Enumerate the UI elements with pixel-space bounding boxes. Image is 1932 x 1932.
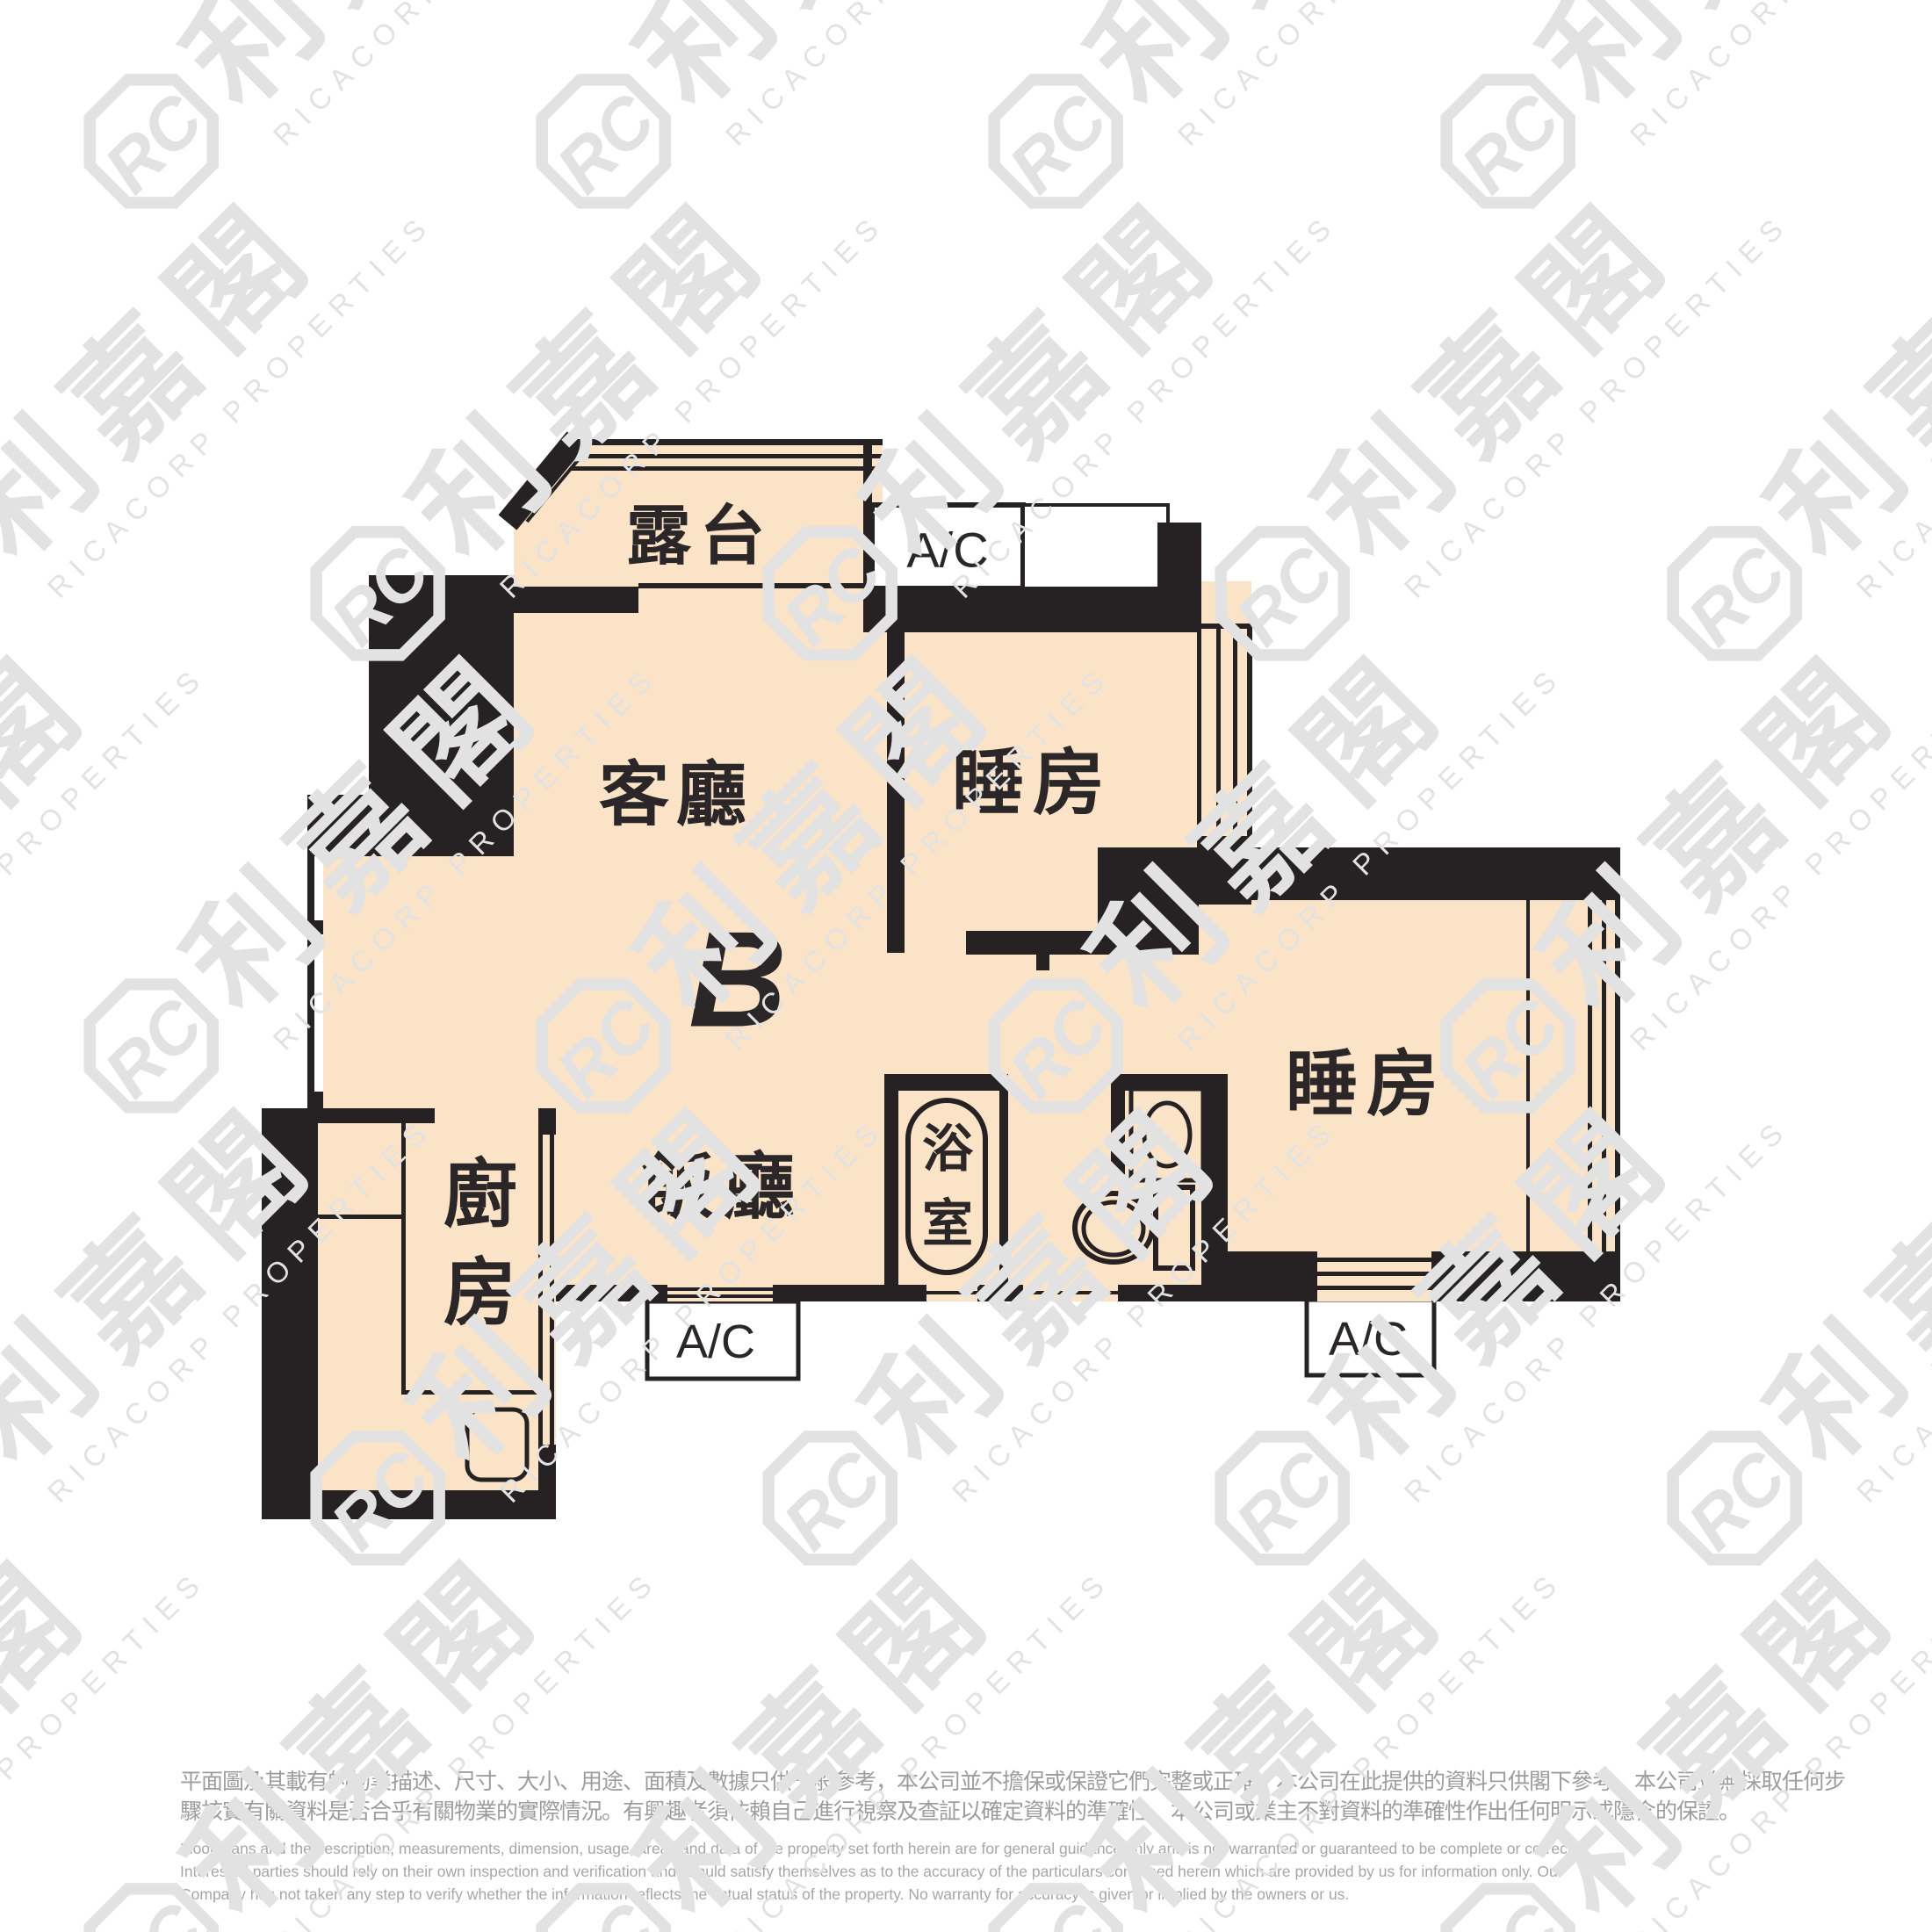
toilet-sill-line	[1023, 1291, 1118, 1294]
kitchen-door-line-b	[550, 1135, 554, 1446]
bathroom-sill-line	[926, 1291, 977, 1294]
kitchen-counter-hline	[401, 1390, 538, 1395]
ac-label-bottom-left: A/C	[676, 1316, 755, 1368]
bedroom1-window-line2	[1216, 626, 1221, 841]
kitchen-counter-vline	[401, 1123, 406, 1395]
bedroom2-label: 睡房	[1286, 1045, 1447, 1125]
balcony-label: 露台	[626, 500, 774, 573]
balcony-door-sill	[638, 583, 863, 588]
wall-bedroom1-left	[887, 632, 905, 953]
bedroom2-window-inner-line	[1526, 900, 1530, 1251]
wall-left-stub-b	[307, 1092, 323, 1111]
bedroom2-bottom-window-line2	[1317, 1272, 1431, 1276]
wall-bathroom-left	[884, 1074, 898, 1301]
wall-kitchen-bottom	[262, 1490, 556, 1519]
disclaimer-en-line2: Interested parties should rely on their …	[180, 1860, 1845, 1883]
floorplan-page: 露台 客廳 睡房 睡房 飯廳 廚房 浴室 B A/C A/C A/C RC利嘉閣…	[0, 0, 1932, 1932]
wall-kitchen-left	[262, 1108, 318, 1519]
bedroom2-window-line1	[1588, 900, 1592, 1251]
disclaimer-zh-line2: 驟核實有關資料是否合乎有關物業的實際情況。有興趣者須依賴自己進行視察及查証以確定…	[180, 1797, 1845, 1827]
wall-left-outer	[307, 795, 314, 1121]
wall-living-top	[514, 587, 638, 613]
wall-bath-toilet-divider	[999, 1074, 1008, 1287]
disclaimer: 平面圖及其載有的物業描述、尺寸、大小、用途、面積及數據只供一般參考，本公司並不擔…	[180, 1767, 1845, 1906]
bedroom1-window-line3	[1233, 626, 1237, 841]
balcony-window-line3	[571, 466, 883, 471]
bedroom1-window-cap	[1197, 624, 1251, 629]
window-box-top-right	[1023, 505, 1168, 588]
wall-bathroom-top	[884, 1074, 1004, 1091]
wall-left-step	[307, 795, 514, 856]
wall-corridor-corner	[1098, 847, 1199, 934]
bedroom1-window-line1	[1197, 626, 1201, 841]
dining-sill-line1	[667, 1287, 773, 1291]
disclaimer-zh-line1: 平面圖及其載有的物業描述、尺寸、大小、用途、面積及數據只供一般參考，本公司並不擔…	[180, 1767, 1845, 1797]
wall-bedroom1-bottom-tick	[1036, 955, 1049, 970]
wall-left-stub-a	[307, 920, 323, 934]
balcony-right-edge	[863, 439, 872, 588]
balcony-window-line2	[571, 454, 883, 458]
kitchen-fridge-divider	[318, 1215, 401, 1219]
ac-label-bottom-right: A/C	[1329, 1313, 1408, 1366]
kitchen-door-line-a	[538, 1135, 543, 1446]
dining-room-label: 飯廳	[642, 1148, 804, 1228]
disclaimer-en-line1: Floor plans and the description, measure…	[180, 1837, 1845, 1860]
disclaimer-en-line3: Company has not taken any step to verify…	[180, 1883, 1845, 1906]
bedroom2-bottom-window-line1	[1317, 1258, 1431, 1262]
dining-sill-line2	[667, 1294, 773, 1298]
bedroom1-window-line4	[1247, 626, 1252, 841]
wall-bedroom1-topright-stub	[1157, 523, 1201, 593]
bedroom2-bottom-window-line3	[1317, 1286, 1431, 1290]
toilet-tank	[1156, 1187, 1193, 1268]
balcony-window-line1	[571, 439, 883, 445]
ac-label-top: A/C	[906, 523, 988, 578]
bedroom2-window-line3	[1615, 900, 1620, 1251]
wall-bedroom1-top	[863, 587, 1201, 632]
wall-kitchen-door-jamb	[538, 1108, 556, 1135]
unit-label: B	[688, 904, 787, 1056]
wall-bedroom1-bottom	[966, 931, 1199, 955]
living-room-label: 客廳	[599, 756, 753, 834]
wall-toilet-sink-stub	[1111, 1091, 1125, 1179]
dining-sill-gap	[667, 1285, 773, 1301]
bedroom2-window-line2	[1602, 900, 1606, 1251]
floorplan-svg: 露台 客廳 睡房 睡房 飯廳 廚房 浴室 B A/C A/C A/C	[0, 0, 1932, 1932]
bedroom1-label: 睡房	[952, 744, 1114, 824]
